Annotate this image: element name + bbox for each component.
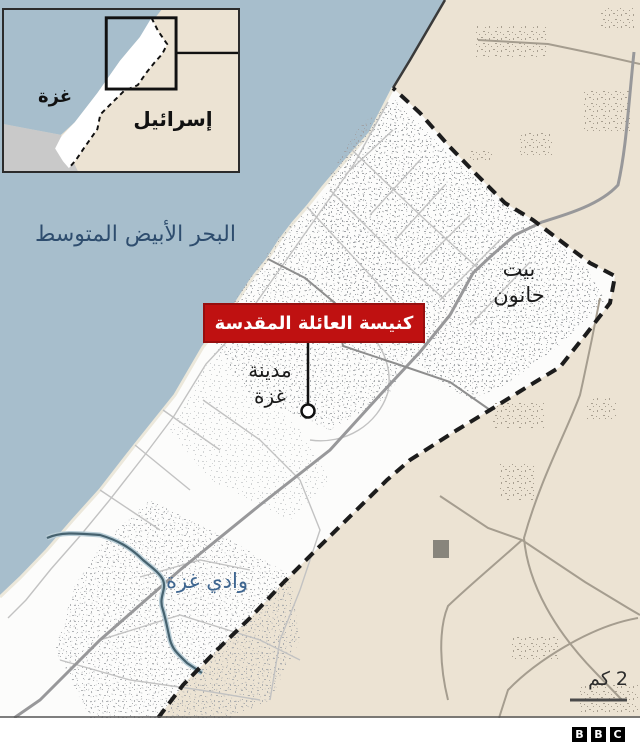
beit-hanoun-line2: حانون: [486, 283, 552, 309]
beit-hanoun-line1: بيت: [486, 257, 552, 283]
inset-gaza-label: غزة: [32, 86, 78, 107]
locator-inset-map: غزة إسرائيل: [2, 8, 240, 173]
bbc-logo: B B C: [572, 727, 625, 742]
inset-israel-label: إسرائيل: [122, 107, 224, 131]
gaza-city-line2: غزة: [234, 383, 306, 409]
bbc-logo-letter-b2: B: [591, 727, 606, 742]
mediterranean-sea-label: البحر الأبيض المتوسط: [24, 223, 236, 248]
wadi-gaza-label: وادي غزة: [162, 570, 252, 594]
bbc-logo-letter-b1: B: [572, 727, 587, 742]
bbc-logo-letter-c: C: [610, 727, 625, 742]
beit-hanoun-label: بيت حانون: [486, 257, 552, 308]
gaza-city-line1: مدينة: [234, 357, 306, 383]
news-map-graphic: غزة إسرائيل البحر الأبيض المتوسط بيت حان…: [0, 0, 640, 750]
gaza-city-label: مدينة غزة: [234, 357, 306, 409]
scale-label: 2 كم: [570, 669, 628, 690]
holy-family-church-label: كنيسة العائلة المقدسة: [203, 303, 425, 343]
